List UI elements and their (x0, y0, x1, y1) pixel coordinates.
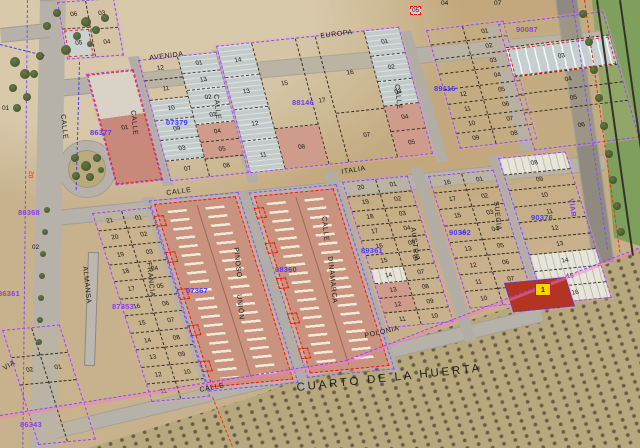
parcel-number: 01 (2, 105, 9, 112)
loading-bay-outline (199, 360, 212, 372)
parcel-number: 06 (161, 300, 170, 307)
tree (600, 122, 608, 130)
parcel-number: 12 (459, 91, 468, 99)
parcel-number: 02 (393, 196, 402, 203)
parcel-number: 03 (489, 57, 498, 65)
tree (23, 93, 31, 101)
parcel-number: 20 (111, 234, 120, 241)
parcel-number: 11 (398, 315, 407, 322)
parcel: 05 (392, 129, 432, 157)
cadastral-block-label: 87353 (112, 302, 134, 311)
loading-bay-outline (254, 207, 267, 219)
parcel-number: 12 (393, 301, 402, 308)
tree (20, 69, 30, 79)
parcel-number: 11 (162, 85, 170, 93)
map-canvas[interactable]: 0605030401121110090307011302030405081413… (0, 0, 640, 448)
parcel-number: 03 (178, 145, 187, 153)
parcel-number: 14 (384, 272, 393, 279)
parcel-number: 14 (143, 337, 152, 344)
parcel-number: 05 (156, 283, 165, 290)
parcel-number: 11 (474, 278, 483, 285)
parcel-number: 08 (222, 162, 231, 170)
parcel: 02 (372, 53, 412, 82)
parcel-number: 01 (389, 181, 398, 188)
cadastral-block-label: 90376 (531, 213, 553, 222)
street-label: CALLE (59, 114, 69, 140)
parcel-number: 08 (297, 143, 306, 151)
tree (36, 52, 44, 60)
tree (38, 295, 44, 301)
parcel-number: 12 (469, 262, 478, 269)
tree (617, 228, 625, 236)
parcel-number: 13 (242, 88, 251, 96)
parcel-number: 01 (120, 123, 129, 131)
parcel-number: 09 (535, 176, 544, 183)
parcel-number: 14 (234, 57, 243, 65)
tree (71, 154, 79, 162)
parcel-number: 06 (501, 259, 510, 266)
parcel-number: 13 (389, 286, 398, 293)
parcel: 07 (166, 157, 209, 180)
parcel-number: 20 (357, 184, 366, 191)
parcel-number: 15 (138, 320, 147, 327)
tree (37, 317, 43, 323)
parcel-number: 05 (410, 6, 421, 15)
parcel-number: 15 (453, 212, 462, 219)
tree (10, 57, 20, 67)
cadastral-block-label: 86361 (0, 289, 20, 298)
parcel-number: 08 (510, 130, 519, 138)
parcel-number: 01 (480, 27, 489, 35)
tree (86, 173, 94, 181)
parcel-number: 05 (569, 94, 578, 102)
tree (53, 9, 61, 17)
parcel-number: 04 (564, 75, 573, 83)
tree (93, 154, 101, 162)
tree (61, 45, 71, 55)
tree (92, 26, 100, 34)
parcel-number: 01 (134, 214, 143, 221)
parcel-number: 04 (103, 38, 111, 45)
loading-bay-outline (165, 252, 178, 264)
parcel-number: 01 (195, 59, 204, 67)
loading-bay-outline (276, 277, 289, 289)
tree (87, 41, 93, 47)
tree (40, 251, 46, 257)
parcel-number: 06 (577, 121, 586, 129)
parcel-number: 12 (550, 224, 559, 231)
parcel-number: 12 (154, 371, 163, 378)
tree (101, 14, 109, 22)
parcel-number: 17 (448, 196, 457, 203)
loading-bay-outline (188, 324, 201, 336)
parcel-number: 15 (280, 80, 289, 88)
parcel-number: 10 (479, 295, 488, 302)
loading-bay-outline (287, 312, 300, 324)
parcel-number: 10 (183, 368, 192, 375)
parcel-number: 05 (497, 86, 506, 94)
tree (39, 273, 45, 279)
parcel-number: 07 (494, 0, 501, 7)
parcel-number: 16 (571, 289, 580, 296)
tree (72, 172, 80, 180)
parcel-number: 02 (25, 366, 34, 373)
tree (605, 150, 613, 158)
street-label: ITALIA (341, 165, 366, 176)
street-label: CALLE (166, 187, 192, 197)
parcel-number: 09 (177, 351, 186, 358)
tree (44, 207, 50, 213)
parcel: 01 (365, 28, 405, 57)
tree (9, 84, 17, 92)
cadastral-block-label: 08360 (275, 265, 297, 274)
parcel: 09 (457, 130, 496, 148)
parcel-number: 13 (199, 76, 208, 84)
tree (73, 32, 81, 40)
tree (13, 104, 21, 112)
parcel-number: 08 (530, 160, 539, 167)
parcel-number: 07 (416, 268, 425, 275)
parcel-number: 07 (363, 131, 372, 139)
parcel-number: 14 (561, 256, 570, 263)
cadastral-block-label: 86343 (20, 420, 42, 429)
parcel-number: 05 (407, 139, 416, 147)
parcel: 04 (385, 104, 425, 133)
parcel-number: 04 (493, 71, 502, 79)
parcel-number: 02 (139, 231, 148, 238)
parcel-number: 04 (401, 114, 410, 122)
cadastral-block-label: 90087 (516, 25, 538, 34)
parcel-number: 18 (366, 213, 375, 220)
parcel-number: 03 (398, 210, 407, 217)
parcel-number: 10 (167, 105, 176, 113)
parcel-number: 17 (318, 96, 327, 104)
parcel-number: 01 (380, 38, 389, 46)
cadastral-block-label: 89361 (361, 246, 383, 255)
parcel-number: 02 (387, 63, 396, 71)
parcel-number: 07 (183, 165, 192, 173)
tree (42, 229, 48, 235)
parcel-number: 09 (426, 298, 435, 305)
parcel-number: 13 (464, 245, 473, 252)
cadastral-block-label: 89116 (434, 84, 455, 93)
loading-bay-outline (265, 242, 278, 254)
parcel-number: 04 (213, 128, 222, 136)
parcel-number: 03 (145, 248, 154, 255)
parcel-number: 15 (379, 257, 388, 264)
parcel-number: 08 (172, 334, 181, 341)
parcel-number: 16 (443, 179, 452, 186)
parcel-number: 03 (557, 52, 566, 60)
parcel: 11 (385, 311, 421, 328)
tree (585, 38, 593, 46)
cadastral-block-label: 86377 (90, 128, 112, 137)
parcel-number: 11 (463, 105, 471, 113)
cadastral-block-label: 07367 (186, 286, 208, 295)
parcel-number: 06 (70, 11, 78, 18)
parcel-number: 02 (28, 171, 36, 179)
parcel-number: 19 (116, 251, 125, 258)
parcel-number: 07 (506, 115, 515, 123)
parcel-number: 19 (361, 199, 370, 206)
tree (81, 17, 91, 27)
tree (81, 161, 91, 171)
parcel-number: 12 (251, 120, 260, 128)
parcel-number: 10 (467, 120, 476, 128)
tree (36, 339, 42, 345)
loading-bay-outline (298, 347, 311, 359)
parcel-number: 09 (472, 135, 481, 143)
parcel-number: 08 (421, 283, 430, 290)
cadastral-block-label: 86368 (18, 208, 40, 217)
parcel-number: 10 (540, 192, 549, 199)
parcel-number: 13 (555, 240, 564, 247)
parcel-number: 04 (441, 0, 448, 7)
tree (43, 22, 51, 30)
parcel-number: 02 (485, 42, 494, 50)
parcel-marker: 1 (535, 283, 551, 296)
parcel-number: 13 (148, 354, 157, 361)
parcel-number: 07 (166, 317, 175, 324)
tree (590, 66, 598, 74)
parcel-number: 18 (121, 268, 130, 275)
parcel-number: 05 (496, 242, 505, 249)
cadastral-block-label: 90362 (449, 228, 471, 237)
block-86343: 0201 (2, 324, 96, 445)
parcel-number: 05 (75, 39, 83, 46)
parcel-number: 21 (105, 217, 114, 224)
parcel-number: 17 (370, 228, 379, 235)
tree (595, 94, 603, 102)
tree (613, 202, 621, 210)
tree (609, 176, 617, 184)
parcel-number: 10 (430, 312, 439, 319)
parcel-number: 06 (501, 101, 510, 109)
tree (30, 70, 38, 78)
cadastral-block-label: 88146 (292, 98, 314, 107)
parcel-number: 05 (218, 145, 227, 153)
parcel-number: 02 (32, 244, 39, 251)
parcel-number: 01 (475, 176, 484, 183)
tree (579, 10, 587, 18)
parcel: 08 (206, 156, 248, 176)
parcel-number: 12 (156, 65, 165, 73)
parcel-number: 16 (346, 68, 355, 76)
parcel-number: 01 (54, 364, 63, 371)
parcel-number: 11 (259, 151, 267, 159)
cadastral-block-label: 07379 (166, 118, 188, 127)
tree (98, 167, 104, 173)
parcel-number: 17 (127, 285, 136, 292)
loading-bay-outline (154, 215, 167, 227)
parcel-number: 02 (480, 193, 489, 200)
